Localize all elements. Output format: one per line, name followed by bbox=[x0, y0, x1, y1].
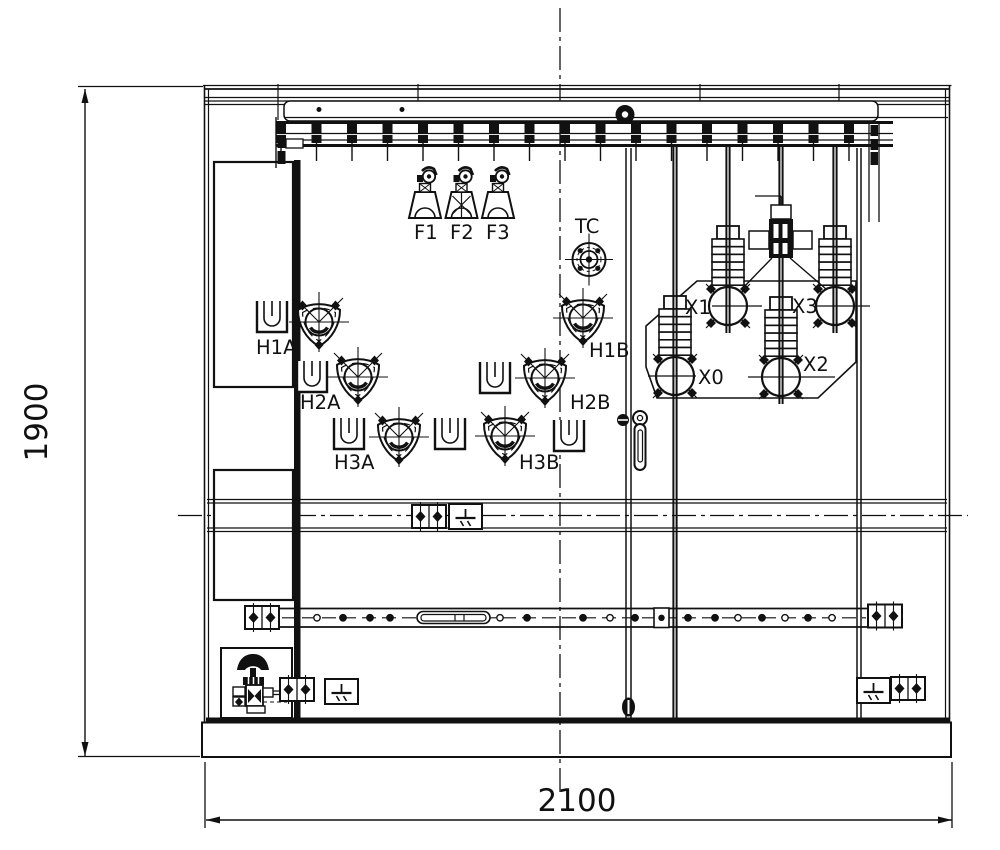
lower-rail-diamond-box-right bbox=[868, 602, 902, 631]
fuse-f1-label: F1 bbox=[414, 221, 438, 244]
fuse-f2-label: F2 bbox=[450, 221, 474, 244]
fuse-f1 bbox=[409, 167, 441, 218]
fuse-f3-label: F3 bbox=[486, 221, 510, 244]
uclamp-h3b bbox=[554, 420, 584, 451]
lv-section: X0 X1 X2 X3 bbox=[646, 146, 870, 719]
lv-label-x3: X3 bbox=[792, 295, 818, 318]
height-dimension: 1900 bbox=[19, 87, 203, 757]
uclamp-h3a bbox=[334, 418, 364, 449]
tc-label: TC bbox=[574, 215, 599, 238]
width-dimension-label: 2100 bbox=[538, 783, 617, 819]
busbar-end-bracket-right bbox=[869, 121, 879, 222]
hv-label-h1b: H1B bbox=[589, 339, 629, 362]
hv-label-h2a: H2A bbox=[300, 391, 341, 414]
right-door-edge bbox=[857, 148, 861, 719]
mid-rail-ground-box bbox=[449, 504, 482, 529]
hv-label-h3b: H3B bbox=[519, 451, 559, 474]
lower-support-rail bbox=[245, 602, 902, 633]
width-dimension: 2100 bbox=[205, 762, 952, 828]
lv-label-x1: X1 bbox=[685, 296, 711, 319]
door-bottom-guide bbox=[622, 698, 635, 717]
lv-label-x0: X0 bbox=[698, 366, 724, 389]
busbar-rail bbox=[276, 101, 948, 222]
valve-diamond-box bbox=[280, 675, 314, 704]
hv-bushings: H1A H2A H3A H3B H2B H1B bbox=[256, 288, 629, 474]
hv-label-h2b: H2B bbox=[570, 391, 610, 414]
lower-rail-diamond-box-left bbox=[245, 603, 279, 632]
busbar-clamps bbox=[276, 123, 854, 161]
lv-label-x2: X2 bbox=[803, 353, 829, 376]
uclamp-h2a bbox=[297, 361, 327, 392]
fuse-f3 bbox=[482, 167, 514, 218]
uclamp-h2b bbox=[480, 362, 510, 393]
cable-support-block bbox=[742, 196, 826, 289]
uclamp-h1a bbox=[257, 301, 287, 332]
hv-bushing-h3a bbox=[369, 407, 429, 467]
hv-bushing-h2b bbox=[515, 348, 575, 408]
uclamp-mid bbox=[435, 418, 465, 449]
lower-rail-slot bbox=[417, 612, 490, 624]
fuse-f2 bbox=[446, 167, 478, 218]
lv-bushing-x1 bbox=[706, 226, 750, 328]
ground-box-bottom-right bbox=[857, 678, 890, 703]
hv-label-h3a: H3A bbox=[334, 451, 375, 474]
mid-rail-diamond-box bbox=[412, 502, 446, 531]
left-panel-boxes bbox=[214, 160, 301, 720]
height-dimension-label: 1900 bbox=[19, 383, 55, 462]
hv-label-h1a: H1A bbox=[256, 336, 297, 359]
tc-bushing bbox=[565, 234, 613, 286]
transformer-front-view-drawing: 1900 2100 bbox=[0, 0, 1000, 850]
door-handle bbox=[617, 411, 647, 470]
diamond-box-bottom-right bbox=[891, 674, 925, 703]
lv-bushing-x3 bbox=[813, 226, 857, 328]
center-door bbox=[617, 148, 647, 719]
ground-box-bottom-left bbox=[325, 679, 358, 704]
